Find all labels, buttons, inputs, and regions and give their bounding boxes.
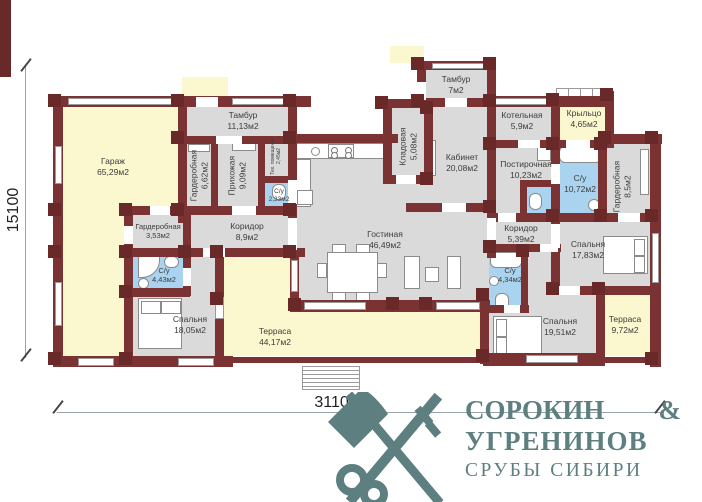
terrace-steps — [302, 366, 360, 390]
log-post — [288, 298, 301, 311]
window — [232, 98, 288, 105]
dining-table — [327, 252, 378, 293]
log-post — [600, 88, 613, 101]
wall-segment — [211, 144, 218, 210]
log-post — [594, 209, 607, 222]
coffee-table — [425, 267, 439, 282]
railing-post — [0, 66, 11, 77]
log-post — [119, 352, 132, 365]
logo-line1: СОРОКИН& — [465, 396, 681, 426]
log-post — [645, 209, 658, 222]
log-post — [171, 94, 184, 107]
window — [495, 98, 547, 105]
log-post — [645, 131, 658, 144]
wardrobe2-shelf — [640, 149, 649, 195]
log-post — [516, 244, 529, 257]
log-post — [48, 352, 61, 365]
window — [178, 358, 214, 366]
logo-axe-key-icon — [328, 392, 460, 502]
logo-line2: УГРЕНИНОВ — [465, 426, 681, 457]
log-post — [386, 297, 399, 310]
chair — [317, 263, 327, 278]
window — [55, 146, 62, 184]
room-label-wardrobe1: Гардеробная6,62м2 — [188, 141, 209, 211]
log-post — [546, 137, 559, 150]
room-label-tambour2: Тамбур7м2 — [416, 74, 496, 95]
log-post — [419, 297, 432, 310]
log-post — [48, 203, 61, 216]
window — [78, 358, 114, 366]
log-post — [171, 131, 184, 144]
room-label-corridor1: Коридор8,9м2 — [207, 221, 287, 242]
room-label-porch: Крыльцо4,65м2 — [544, 108, 624, 129]
door-opening — [566, 140, 590, 148]
log-post — [48, 245, 61, 258]
room-label-hallway: Прихожая9,09м2 — [226, 141, 247, 211]
door-opening — [442, 203, 466, 212]
log-post — [483, 57, 496, 70]
room-label-pantry: Кладовая5,08м2 — [397, 112, 418, 182]
railing-post — [0, 55, 11, 66]
wall-segment — [53, 96, 63, 367]
room-label-bath2: С/у4,43м2 — [124, 266, 204, 285]
window — [304, 302, 366, 310]
window — [55, 282, 62, 326]
sofa — [404, 256, 420, 289]
room-label-tech: Тех. помещение2,45м2 — [270, 126, 282, 186]
room-label-wardrobe3: Гардеробная3,53м2 — [118, 222, 198, 241]
window — [432, 63, 484, 69]
railing-post — [0, 22, 11, 33]
door-opening — [150, 206, 170, 215]
room-label-living: Гостиная46,49м2 — [345, 229, 425, 250]
log-post — [483, 94, 496, 107]
door-opening — [518, 140, 540, 148]
window — [526, 355, 578, 363]
log-post — [210, 245, 223, 258]
room-label-wc-small: С/у2,33м2 — [259, 188, 299, 204]
wall-segment — [290, 134, 398, 143]
wall-segment — [383, 99, 392, 183]
chair — [377, 263, 387, 278]
log-post — [546, 93, 559, 106]
room-terrace1-south — [292, 310, 484, 356]
room-label-wardrobe2: Гардеробная8,5м2 — [611, 152, 632, 222]
log-post — [119, 245, 132, 258]
kitchen-sink — [311, 147, 320, 156]
fridge — [297, 190, 313, 205]
railing-post — [0, 11, 11, 22]
railing-post — [0, 33, 11, 44]
door-opening — [498, 213, 516, 222]
log-post — [476, 288, 489, 301]
railing-post — [0, 0, 11, 11]
room-label-garage: Гараж65,29м2 — [73, 156, 153, 177]
stove — [328, 144, 354, 158]
log-post — [645, 352, 658, 365]
log-post — [178, 245, 191, 258]
terrace-railing — [225, 357, 485, 363]
room-label-bath-big: С/у10,72м2 — [540, 173, 620, 194]
log-post — [375, 96, 388, 109]
log-post — [283, 131, 296, 144]
room-label-terrace1: Терраса44,17м2 — [235, 326, 315, 347]
door-opening — [445, 98, 467, 107]
log-post — [283, 245, 296, 258]
log-post — [283, 94, 296, 107]
log-post — [48, 94, 61, 107]
log-post — [171, 203, 184, 216]
porch-small-west — [182, 77, 228, 98]
door-opening — [504, 305, 520, 313]
log-post — [210, 292, 223, 305]
door-opening — [558, 286, 580, 295]
log-post — [483, 137, 496, 150]
room-label-bedroom1: Спальня18,05м2 — [150, 314, 230, 335]
dimension-tick — [20, 348, 31, 362]
log-post — [483, 200, 496, 213]
log-post — [420, 172, 433, 185]
log-post — [594, 137, 607, 150]
log-post — [411, 57, 424, 70]
room-label-terrace2: Терраса9,72м2 — [585, 314, 665, 335]
logo-text: СОРОКИН& УГРЕНИНОВ СРУБЫ СИБИРИ — [465, 396, 681, 482]
log-post — [476, 349, 489, 362]
door-opening — [196, 97, 218, 107]
log-post — [592, 282, 605, 295]
window — [436, 302, 480, 310]
sofa — [447, 256, 461, 289]
room-label-bath3: С/у4,34м2 — [470, 266, 550, 285]
dimension-tick — [20, 58, 31, 72]
log-post — [546, 209, 559, 222]
wall-segment — [124, 288, 190, 297]
logo-tagline: СРУБЫ СИБИРИ — [465, 460, 681, 482]
log-post — [119, 285, 132, 298]
room-label-bedroom2: Спальня17,83м2 — [548, 239, 628, 260]
railing-post — [0, 44, 11, 55]
window — [291, 260, 298, 292]
window — [68, 98, 176, 105]
log-post — [283, 203, 296, 216]
log-post — [420, 101, 433, 114]
toilet-nook — [529, 193, 542, 210]
window — [652, 233, 659, 283]
floor-plan: Гараж65,29м2 Тамбур11,13м2 Гардеробная6,… — [0, 0, 702, 502]
log-post — [119, 203, 132, 216]
dimension-line-vertical — [25, 66, 26, 358]
dimension-height-label: 15100 — [5, 180, 25, 240]
